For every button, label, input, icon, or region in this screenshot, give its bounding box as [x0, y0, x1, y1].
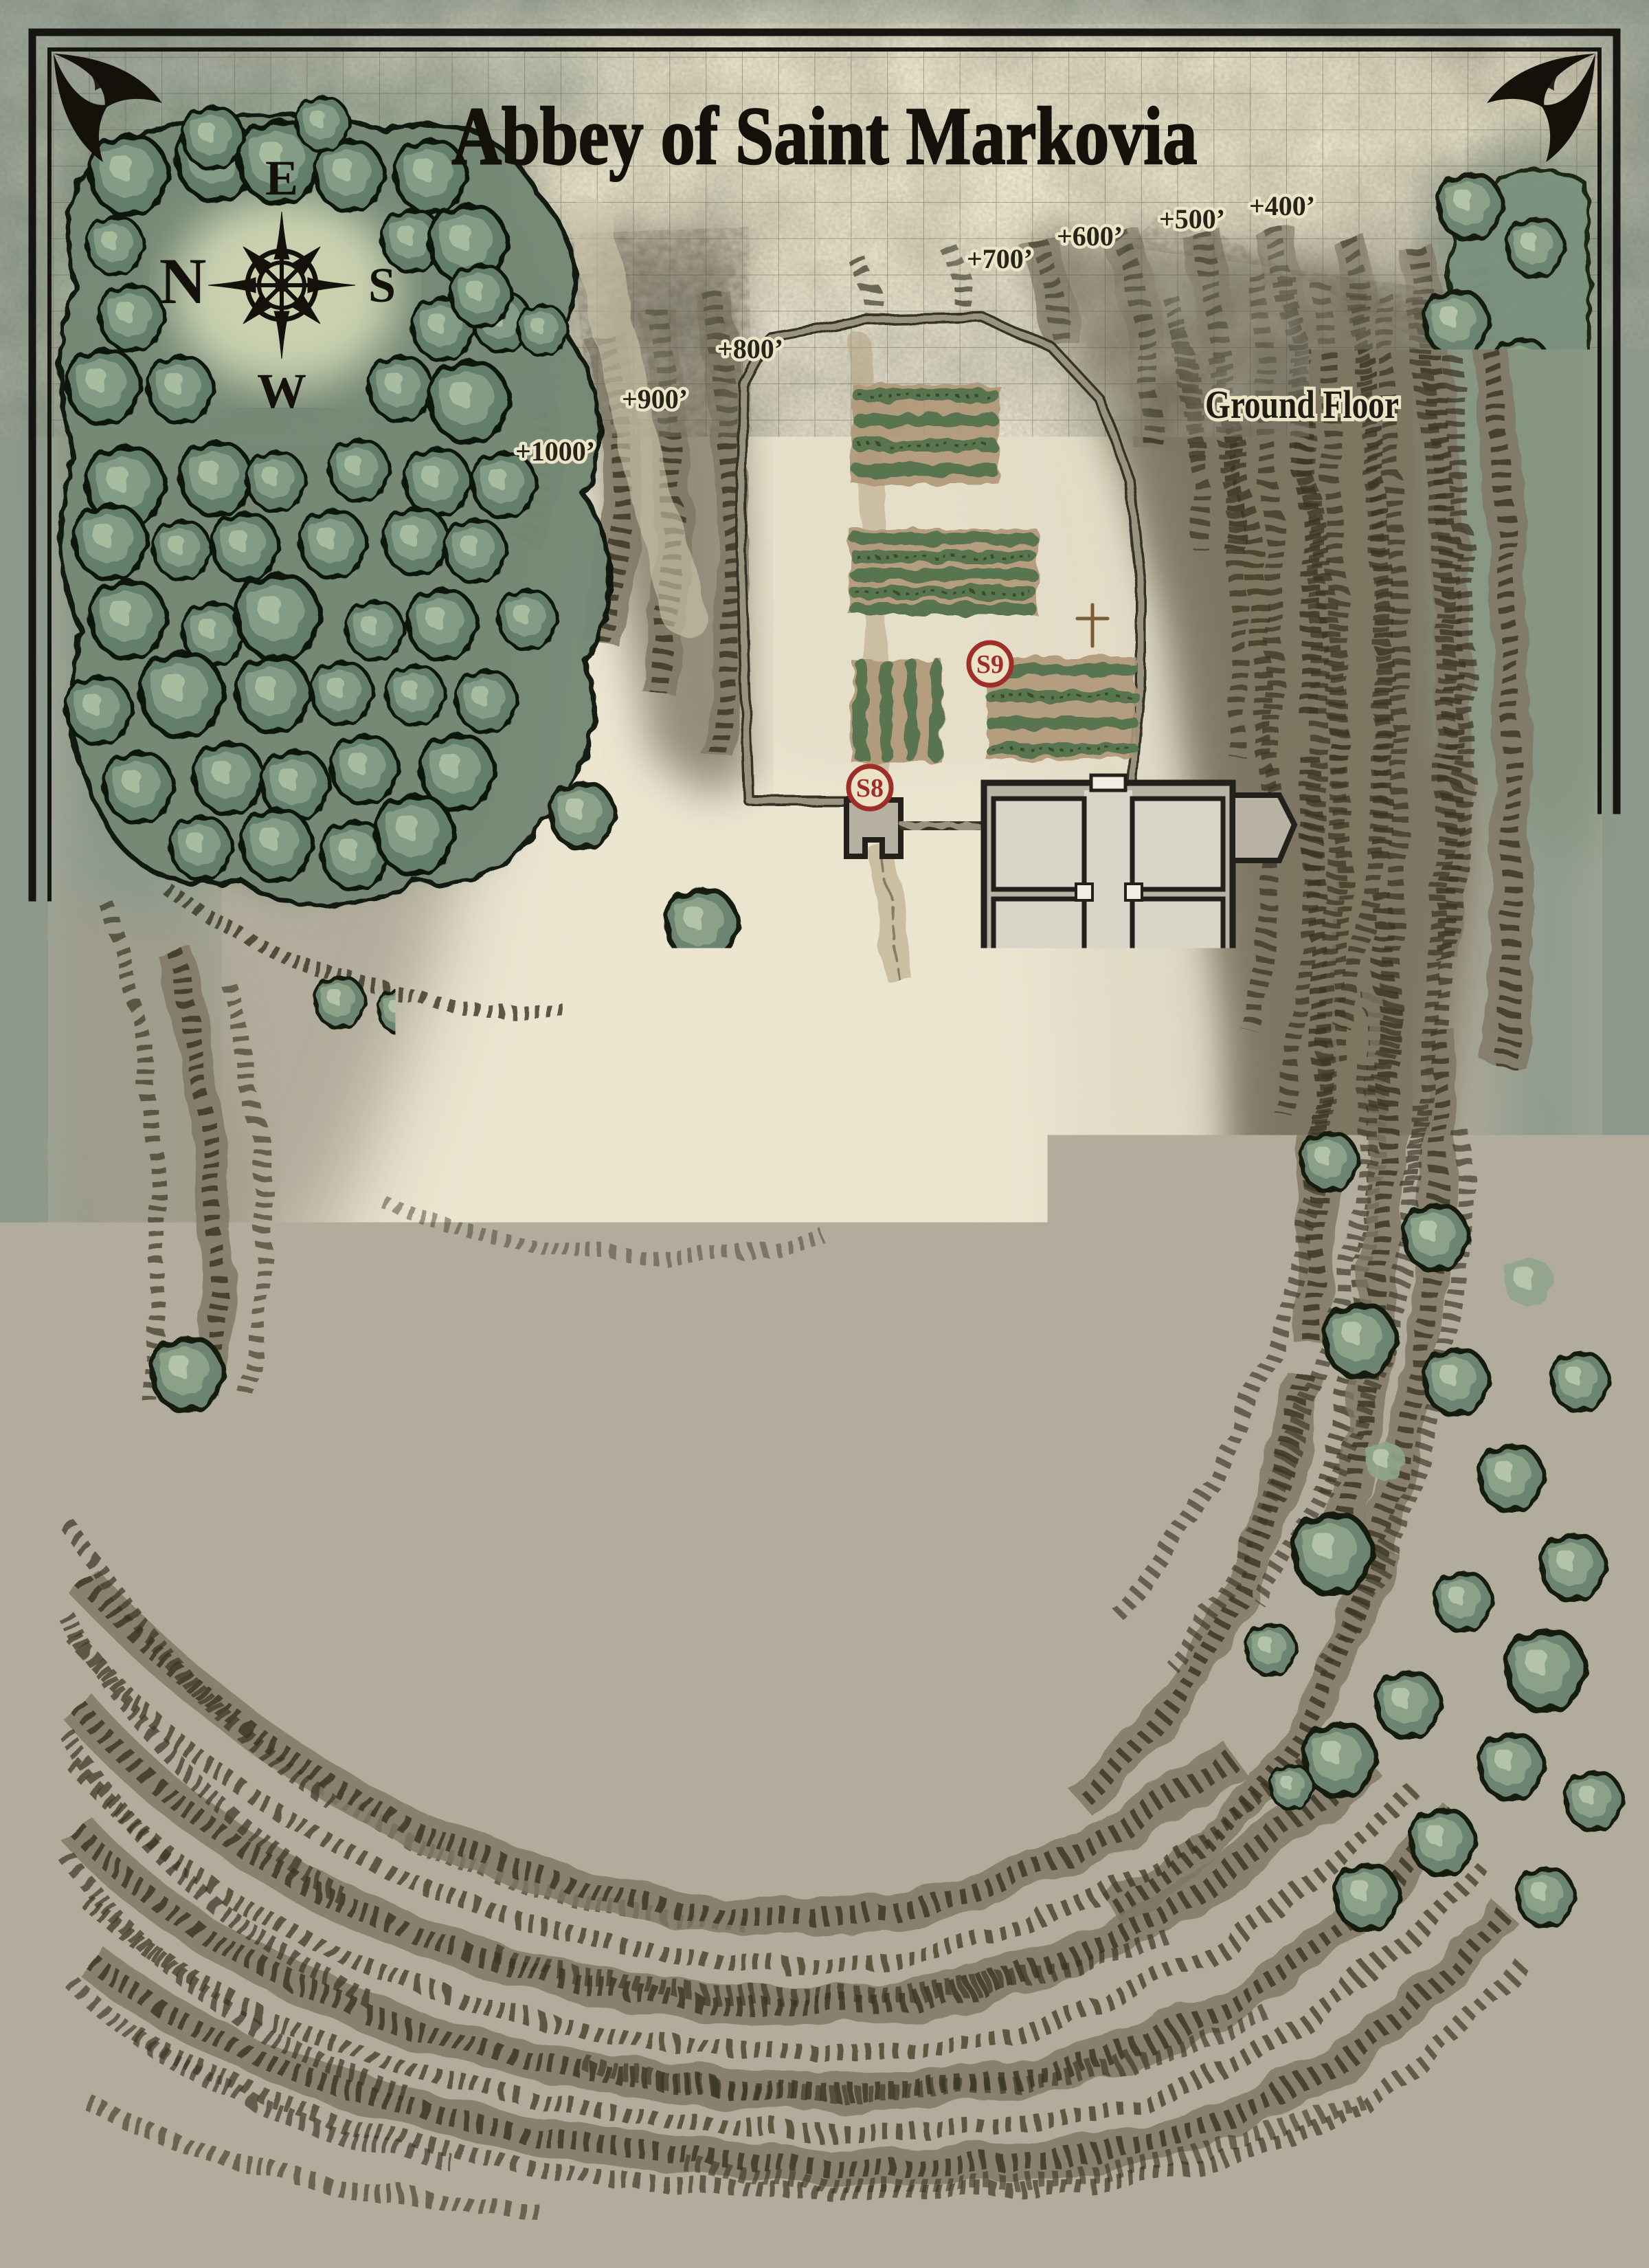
- svg-text:X: X: [627, 1795, 648, 1827]
- svg-text:Abbey of Saint Markovia: Abbey of Saint Markovia: [452, 90, 1198, 181]
- svg-text:One square = 10 feet: One square = 10 feet: [1234, 2161, 1465, 2197]
- svg-text:Ground Floor: Ground Floor: [1205, 382, 1399, 427]
- svg-text:D: D: [1095, 1375, 1119, 1414]
- svg-text:S11: S11: [925, 1310, 964, 1339]
- svg-text:+600’: +600’: [1104, 1672, 1170, 1703]
- svg-text:H: H: [1169, 834, 1196, 872]
- svg-text:+500’: +500’: [1159, 203, 1225, 234]
- svg-text:S15: S15: [1087, 1008, 1128, 1037]
- svg-text:F: F: [1170, 1023, 1191, 1061]
- svg-text:B: B: [1029, 1547, 1048, 1579]
- svg-text:+600’: +600’: [1057, 221, 1123, 252]
- svg-text:S7: S7: [314, 1593, 341, 1622]
- svg-text:S6: S6: [314, 1453, 341, 1482]
- svg-text:S12: S12: [921, 1503, 962, 1532]
- svg-text:C: C: [1205, 1331, 1226, 1362]
- svg-text:S: S: [368, 258, 396, 313]
- svg-text:E: E: [265, 151, 298, 205]
- svg-text:C: C: [910, 1721, 931, 1753]
- svg-text:+700’: +700’: [967, 243, 1033, 274]
- svg-text:+1000’: +1000’: [515, 436, 595, 467]
- svg-text:S7: S7: [814, 1809, 841, 1838]
- svg-text:S14: S14: [991, 1241, 1032, 1269]
- svg-text:+400’: +400’: [1249, 190, 1315, 221]
- svg-text:C: C: [1205, 1377, 1226, 1409]
- svg-text:C: C: [863, 1721, 884, 1753]
- svg-text:S9: S9: [976, 650, 1004, 679]
- svg-text:S13: S13: [614, 1619, 655, 1647]
- svg-text:+900’: +900’: [622, 383, 688, 414]
- svg-text:W: W: [257, 364, 306, 419]
- svg-text:C: C: [758, 1565, 778, 1597]
- svg-text:E: E: [1169, 1115, 1192, 1153]
- svg-text:C: C: [1205, 1425, 1226, 1457]
- svg-text:A: A: [1000, 1473, 1024, 1511]
- svg-text:G: G: [1169, 929, 1196, 967]
- svg-text:A: A: [1026, 1115, 1051, 1153]
- svg-text:C: C: [1029, 929, 1054, 967]
- svg-text:B: B: [1029, 1023, 1051, 1061]
- svg-text:S11: S11: [781, 1452, 820, 1481]
- svg-text:B: B: [981, 1594, 1000, 1626]
- svg-text:C: C: [816, 1721, 837, 1753]
- svg-text:S10: S10: [851, 1337, 891, 1366]
- svg-text:+700’: +700’: [1046, 1614, 1112, 1645]
- svg-text:S8: S8: [856, 774, 884, 803]
- svg-text:+800’: +800’: [717, 333, 783, 364]
- svg-text:+500’: +500’: [1196, 1731, 1262, 1761]
- svg-text:C: C: [759, 1665, 780, 1697]
- svg-text:D: D: [1027, 834, 1051, 872]
- svg-text:C: C: [1145, 1275, 1166, 1307]
- svg-text:S5: S5: [925, 2016, 952, 2045]
- svg-text:B: B: [1075, 1500, 1094, 1531]
- svg-text:+400’: +400’: [1294, 1770, 1360, 1801]
- svg-text:N: N: [159, 245, 207, 318]
